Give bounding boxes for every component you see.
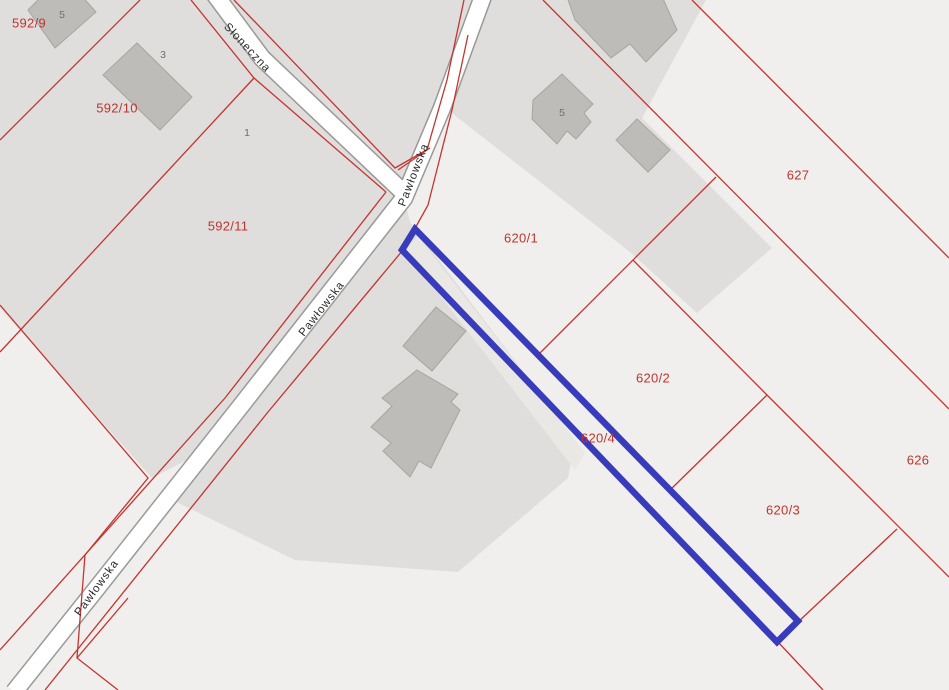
boundary-line bbox=[668, 395, 767, 492]
boundary-line bbox=[633, 260, 949, 577]
map-layers bbox=[0, 0, 949, 690]
map-canvas[interactable]: 592/9 592/10 592/11 620/1 620/2 620/4 62… bbox=[0, 0, 949, 690]
boundary-line bbox=[778, 642, 823, 690]
boundary-line bbox=[798, 529, 897, 622]
